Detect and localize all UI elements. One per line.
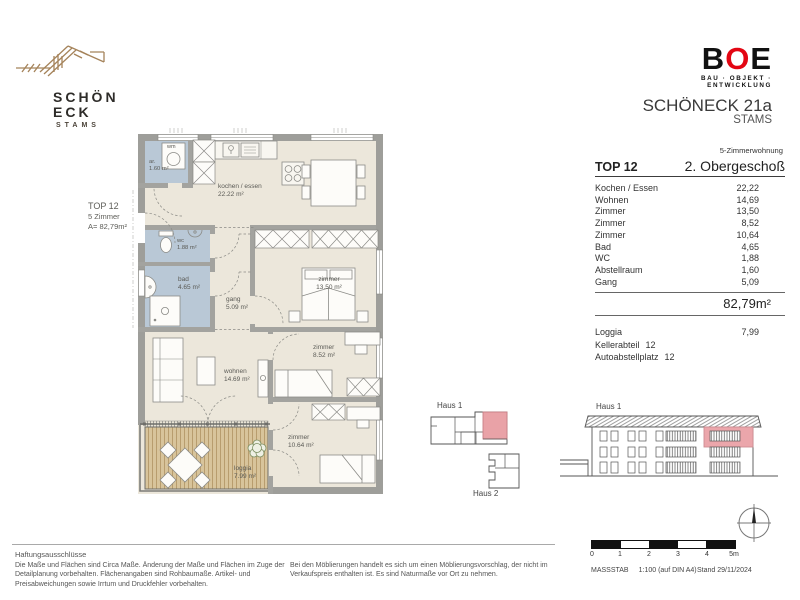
shower-icon — [150, 296, 180, 326]
sitekey-haus2-label: Haus 2 — [473, 489, 498, 498]
coffee-table-icon — [197, 357, 215, 385]
sitekey-highlight-unit — [483, 412, 507, 439]
brochure-page: SCHÖN ECK STAMS BOE BAU · OBJEKT · ENTWI… — [0, 0, 800, 600]
room-label-zimmer3: zimmer10.64 m² — [288, 434, 314, 450]
table-row: Abstellraum1,60 — [595, 265, 785, 277]
room-label-zimmer2: zimmer8.52 m² — [313, 344, 335, 360]
loggia-row: Loggia7,99 — [595, 327, 785, 339]
patio-table-icon — [160, 442, 210, 488]
footer-divider — [12, 544, 555, 545]
room-label-wohnen: wohnen14.69 m² — [224, 368, 250, 384]
parking-row: Autoabstellplatz12 — [595, 351, 785, 363]
apartment-type: 5-Zimmerwohnung — [595, 146, 785, 155]
dining-table-icon — [302, 160, 365, 206]
scale-bar: 0 1 2 3 4 5m — [591, 540, 736, 559]
building-elevation — [560, 398, 785, 498]
scale-caption: MASSSTAB1:100 (auf DIN A4) — [591, 567, 697, 574]
developer-tagline: BAU · OBJEKT · ENTWICKLUNG — [640, 75, 772, 89]
room-label-bad: bad4.65 m² — [178, 276, 200, 292]
scale-bar-segments — [591, 540, 736, 549]
table-row: WC1,88 — [595, 253, 785, 265]
site-key-map — [425, 396, 525, 498]
keller-row: Kellerabteil12 — [595, 339, 785, 351]
room-label-wc: wc1.88 m² — [177, 238, 197, 252]
disclaimer-title: Haftungsausschlüsse — [15, 550, 86, 559]
wardrobe-icon — [193, 140, 215, 184]
date-caption: Stand 29/11/2024 — [697, 567, 752, 574]
table-row: Bad4,65 — [595, 242, 785, 254]
unit-summary-table: 5-Zimmerwohnung TOP 12 2. Obergeschoß Ko… — [595, 146, 785, 363]
single-bed-icon — [275, 370, 332, 397]
room-label-gang: gang5.09 m² — [226, 296, 248, 312]
room-label-kochen: kochen / essen22.22 m² — [218, 183, 262, 199]
brand-subtitle: STAMS — [56, 122, 100, 129]
tv-board-icon — [258, 360, 268, 397]
project-location: STAMS — [560, 114, 772, 126]
unit-number: TOP 12 — [595, 160, 638, 174]
scale-bar-ticks: 0 1 2 3 4 5m — [591, 549, 736, 559]
room-label-loggia: loggia7.99 m² — [234, 465, 256, 481]
table-row: Zimmer13,50 — [595, 206, 785, 218]
floor-plan: ar.1.60 m² wm kochen / essen22.22 m² wc1… — [120, 128, 390, 500]
room-label-abstellraum: ar.1.60 m² — [149, 159, 169, 173]
total-area: 82,79m² — [595, 292, 785, 316]
single-bed-icon — [320, 455, 375, 483]
sofa-icon — [153, 338, 183, 402]
toilet-icon — [159, 231, 173, 253]
north-arrow-icon — [733, 500, 775, 542]
project-title: SCHÖNECK 21a — [560, 96, 772, 116]
table-row: Gang5,09 — [595, 277, 785, 289]
stove-icon — [282, 162, 304, 185]
wardrobe-icon — [347, 378, 380, 396]
table-row: Zimmer10,64 — [595, 230, 785, 242]
kitchen-counter-icon — [215, 141, 277, 159]
brand-roof-logo-icon — [14, 38, 118, 88]
appliance-label-wm: wm — [167, 144, 176, 150]
table-extras: Loggia7,99 Kellerabteil12 Autoabstellpla… — [595, 327, 785, 363]
table-row: Kochen / Essen22,22 — [595, 183, 785, 195]
floor-name: 2. Obergeschoß — [685, 158, 785, 174]
disclaimer-col1: Die Maße und Flächen sind Circa Maße. Än… — [15, 561, 287, 589]
table-row: Wohnen14,69 — [595, 195, 785, 207]
brand-name: SCHÖN ECK — [53, 90, 119, 120]
table-header: TOP 12 2. Obergeschoß — [595, 158, 785, 177]
wardrobe-icon — [312, 404, 345, 420]
room-rows: Kochen / Essen22,22 Wohnen14,69 Zimmer13… — [595, 183, 785, 288]
disclaimer-col2: Bei den Möblierungen handelt es sich um … — [290, 561, 552, 580]
developer-logo: BOE BAU · OBJEKT · ENTWICKLUNG — [640, 44, 772, 89]
table-row: Zimmer8,52 — [595, 218, 785, 230]
developer-logo-letters: BOE — [640, 44, 772, 74]
room-label-zimmer1: zimmer13.50 m² — [299, 276, 359, 292]
wardrobe-row-icon — [255, 230, 378, 248]
